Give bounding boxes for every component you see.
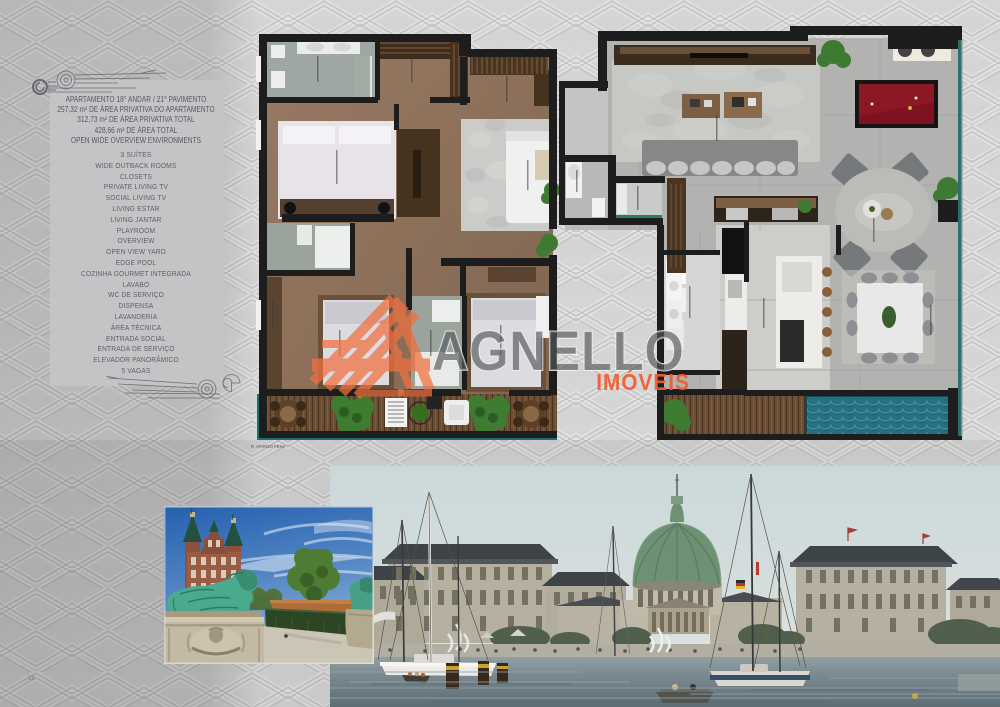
svg-text:IMÓVEIS: IMÓVEIS [596, 369, 690, 395]
